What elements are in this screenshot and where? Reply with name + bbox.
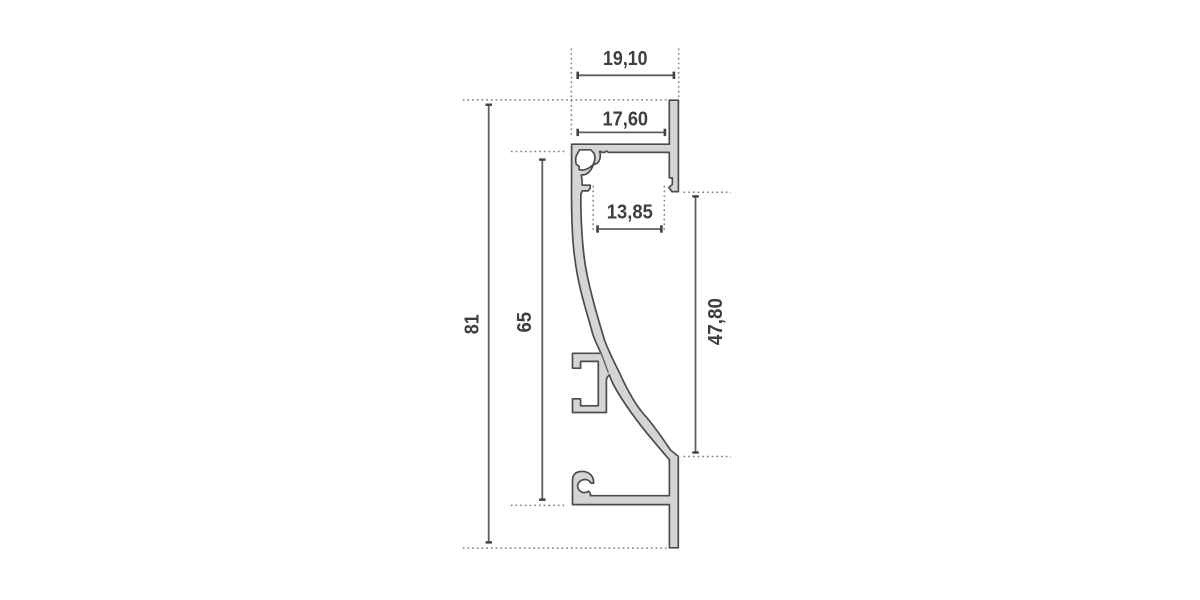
svg-text:13,85: 13,85 bbox=[607, 201, 653, 224]
svg-text:81: 81 bbox=[461, 314, 484, 334]
svg-text:17,60: 17,60 bbox=[603, 107, 649, 130]
svg-text:19,10: 19,10 bbox=[603, 47, 648, 70]
svg-text:47,80: 47,80 bbox=[704, 298, 727, 345]
svg-text:65: 65 bbox=[513, 312, 536, 333]
